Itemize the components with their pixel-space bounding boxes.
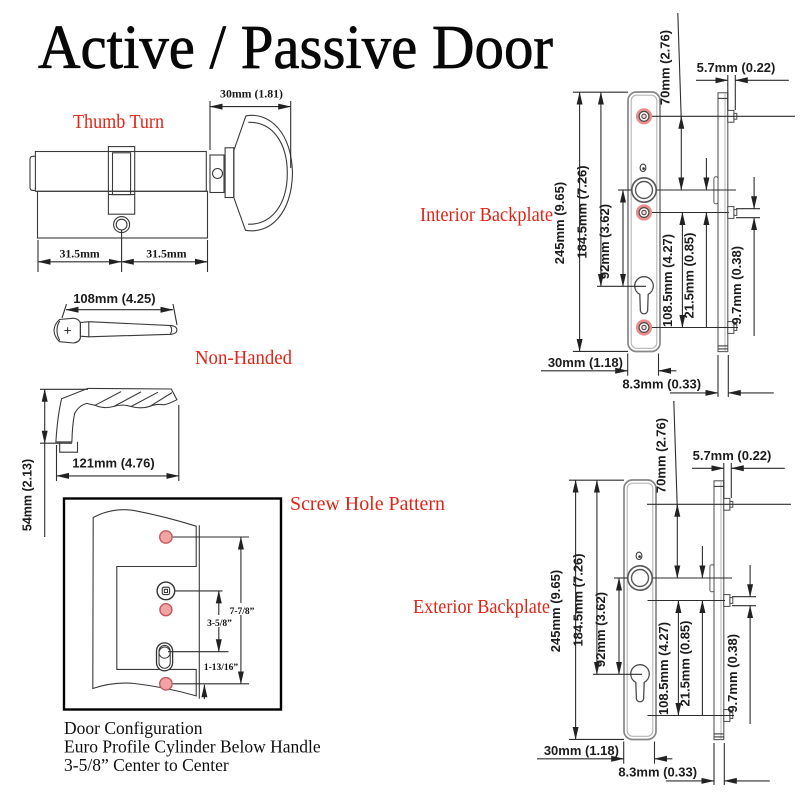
svg-text:3-5/8” Center to Center: 3-5/8” Center to Center [64, 755, 229, 775]
svg-text:Non-Handed: Non-Handed [195, 347, 292, 369]
svg-text:1-13/16”: 1-13/16” [204, 663, 239, 673]
svg-text:7-7/8”: 7-7/8” [230, 607, 255, 617]
svg-text:Screw Hole Pattern: Screw Hole Pattern [290, 493, 445, 515]
svg-text:30mm (1.81): 30mm (1.81) [220, 87, 283, 101]
svg-text:31.5mm: 31.5mm [59, 247, 99, 261]
svg-text:54mm (2.13): 54mm (2.13) [21, 459, 35, 531]
svg-text:Active / Passive Door: Active / Passive Door [38, 14, 553, 82]
svg-text:Exterior Backplate: Exterior Backplate [413, 596, 550, 618]
svg-text:31.5mm: 31.5mm [146, 247, 186, 261]
svg-text:Interior Backplate: Interior Backplate [420, 204, 553, 226]
svg-text:121mm (4.76): 121mm (4.76) [72, 456, 154, 471]
svg-text:Thumb Turn: Thumb Turn [73, 111, 164, 133]
svg-text:Euro Profile Cylinder Below Ha: Euro Profile Cylinder Below Handle [64, 737, 321, 757]
svg-text:3-5/8”: 3-5/8” [207, 619, 232, 629]
svg-text:108mm (4.25): 108mm (4.25) [73, 291, 155, 306]
svg-text:Door Configuration: Door Configuration [64, 718, 203, 738]
